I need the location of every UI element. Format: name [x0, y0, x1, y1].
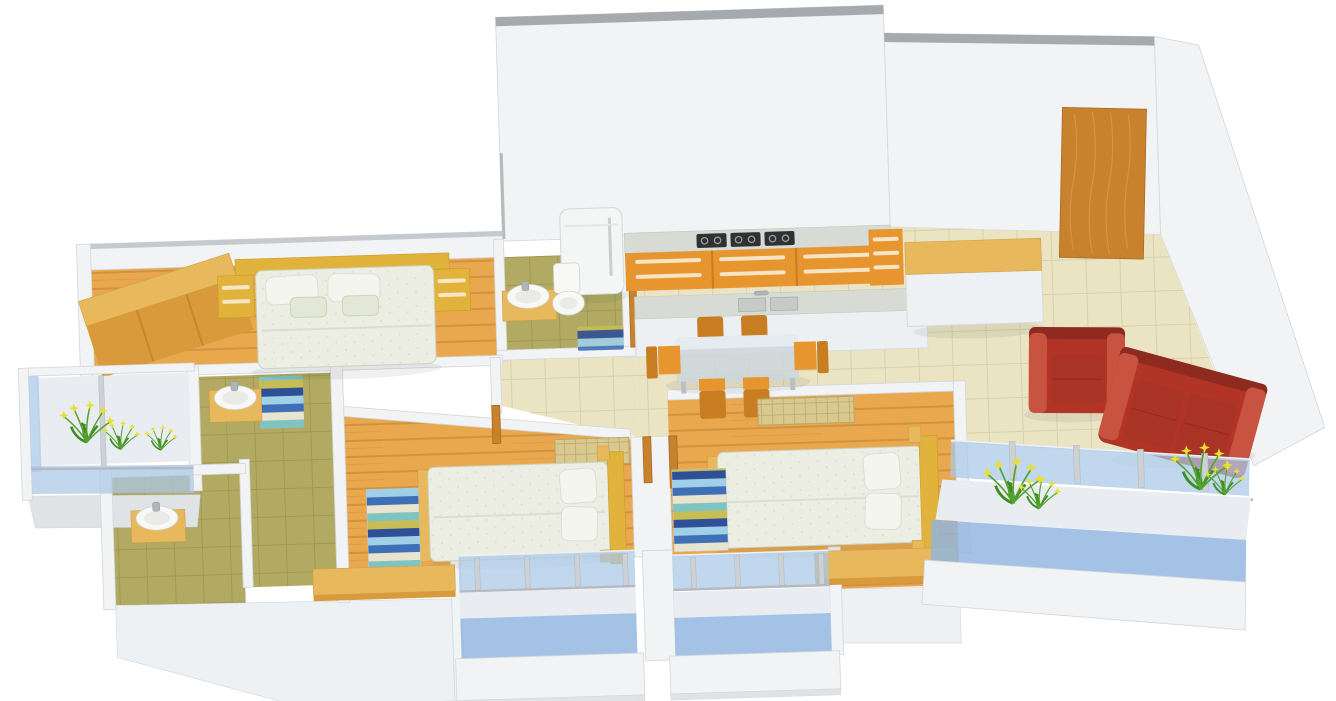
sink-tap: [754, 291, 768, 295]
bed-post: [909, 426, 921, 442]
front-glass: [31, 461, 194, 498]
tatami-chest: [758, 396, 855, 425]
pillow: [561, 506, 598, 541]
wood-desk: [313, 565, 456, 595]
base-bottom-left: [116, 595, 463, 701]
entrance-door: [1059, 107, 1146, 259]
balcony-floor: [460, 587, 637, 619]
master-door-leaf: [492, 405, 501, 443]
floorplan-stage: [0, 0, 1336, 701]
outer-glass-parapet: [674, 613, 831, 656]
outer-glass-parapet: [460, 613, 637, 659]
dining-chair-back: [697, 316, 724, 339]
nightstand-right: [433, 268, 470, 311]
balcony-living: [917, 432, 1257, 640]
dining-chair-back: [741, 315, 768, 338]
sink-bowl-right: [770, 297, 797, 311]
balcony-bedroom2: [452, 551, 645, 701]
striped-rug: [672, 468, 729, 552]
bath-mat: [259, 375, 305, 428]
dining-chair-right: [794, 341, 829, 374]
nightstand-left: [217, 275, 254, 318]
corner-drawer-unit: [868, 229, 904, 286]
console-cabinet: [905, 238, 1044, 326]
headboard: [607, 451, 627, 563]
balcony-bedroom3: [666, 551, 840, 700]
outer-wall: [456, 653, 645, 701]
pillow: [865, 493, 902, 530]
apartment-scene: [8, 0, 1333, 701]
dining-chair-bottom-left: [699, 378, 726, 419]
floorplan-render: [0, 0, 1336, 701]
toilet-tank: [553, 263, 580, 294]
basin-tap: [231, 382, 238, 391]
basin-tap: [153, 502, 160, 511]
accent-pillow: [342, 295, 379, 316]
accent-pillow: [290, 297, 327, 318]
pillow: [862, 452, 901, 491]
pillow: [559, 467, 598, 504]
basin-tap: [522, 281, 529, 290]
kitchen-back-wall: [495, 5, 890, 241]
inner-glass-railing: [458, 551, 635, 591]
bed-post: [597, 446, 609, 460]
striped-rug: [366, 488, 421, 574]
balcony-floor: [674, 587, 831, 618]
outer-wall: [670, 651, 841, 694]
table-leg: [790, 378, 795, 390]
sink-bowl-left: [738, 298, 765, 312]
balcony-floor: [37, 373, 192, 466]
bedroom2-door-leaf: [643, 437, 652, 483]
balcony-master: [18, 363, 198, 500]
dining-chair-left: [646, 346, 681, 379]
bath-mat: [577, 325, 624, 350]
table-leg: [681, 381, 686, 393]
